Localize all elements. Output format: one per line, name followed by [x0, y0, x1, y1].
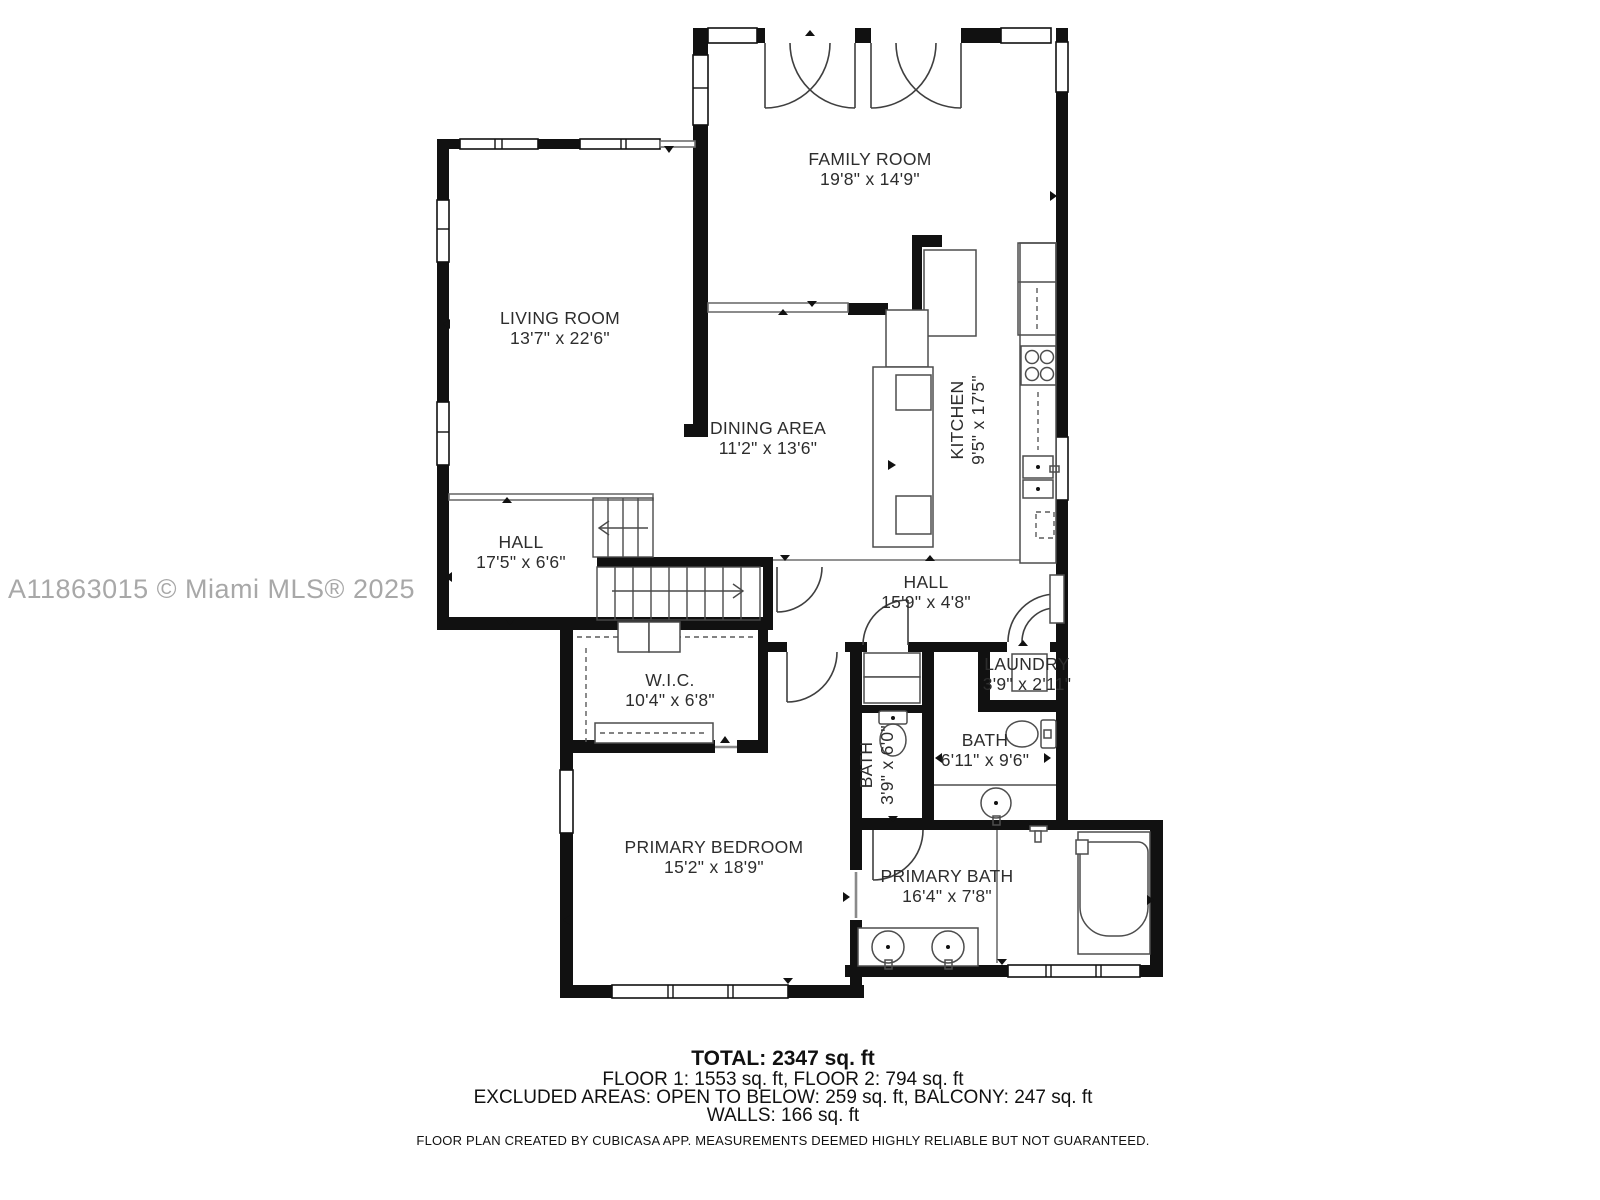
room-label-laundry: LAUNDRY: [984, 654, 1069, 674]
floor-plan-canvas: FAMILY ROOM 19'8" x 14'9" LIVING ROOM 13…: [0, 0, 1600, 1200]
room-label-hall-2: HALL: [904, 572, 949, 592]
room-dims-dining-area: 11'2" x 13'6": [719, 438, 818, 458]
summary-disclaimer: FLOOR PLAN CREATED BY CUBICASA APP. MEAS…: [416, 1133, 1149, 1148]
room-dims-laundry: 3'9" x 2'11": [983, 674, 1072, 694]
vanity-counter: [858, 928, 978, 966]
island-cabinet: [886, 310, 928, 367]
room-dims-kitchen: 9'5" x 17'5": [968, 375, 988, 465]
kitchen-island: [873, 367, 933, 547]
room-dims-primary-bedroom: 15'2" x 18'9": [664, 857, 764, 877]
room-label-wic: W.I.C.: [645, 670, 694, 690]
room-label-bath: BATH: [962, 730, 1009, 750]
floor-plan-page: FAMILY ROOM 19'8" x 14'9" LIVING ROOM 13…: [0, 0, 1600, 1200]
room-label-living-room: LIVING ROOM: [500, 308, 620, 328]
room-label-kitchen: KITCHEN: [947, 381, 967, 460]
summary-walls: WALLS: 166 sq. ft: [707, 1105, 860, 1126]
room-dims-family-room: 19'8" x 14'9": [820, 169, 920, 189]
room-dims-primary-bath: 16'4" x 7'8": [902, 886, 992, 906]
room-label-family-room: FAMILY ROOM: [808, 149, 931, 169]
room-label-primary-bedroom: PRIMARY BEDROOM: [625, 837, 804, 857]
room-label-hall-1: HALL: [499, 532, 544, 552]
summary-total: TOTAL: 2347 sq. ft: [691, 1047, 875, 1070]
shower-valve-icon: [1030, 826, 1047, 842]
room-dims-hall-1: 17'5" x 6'6": [476, 552, 566, 572]
room-dims-living-room: 13'7" x 22'6": [510, 328, 610, 348]
room-dims-wic: 10'4" x 6'8": [625, 690, 715, 710]
room-dims-hall-2: 15'9" x 4'8": [881, 592, 971, 612]
bathtub-icon: [1076, 832, 1150, 954]
room-label-bath-small: BATH: [856, 742, 876, 789]
room-dims-bath: 6'11" x 9'6": [941, 750, 1030, 770]
area-summary: TOTAL: 2347 sq. ft FLOOR 1: 1553 sq. ft,…: [416, 1047, 1149, 1148]
room-label-dining-area: DINING AREA: [710, 418, 826, 438]
room-dims-bath-small: 3'9" x 6'0": [877, 725, 897, 805]
mls-watermark: A11863015 © Miami MLS® 2025: [8, 574, 415, 604]
room-label-primary-bath: PRIMARY BATH: [881, 866, 1014, 886]
pantry-cabinet: [924, 250, 976, 336]
hall-closet-shelves: [864, 653, 920, 703]
